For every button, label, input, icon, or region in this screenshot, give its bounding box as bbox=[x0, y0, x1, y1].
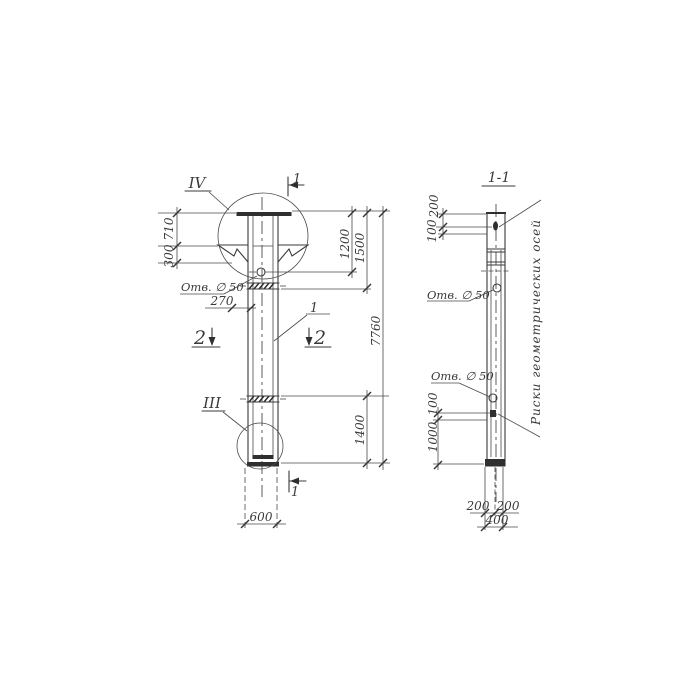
dim-400: 400 bbox=[485, 513, 509, 527]
dim-710: 710 bbox=[162, 217, 176, 240]
detail-circle-top bbox=[218, 193, 308, 279]
section-view-dimensions bbox=[427, 186, 541, 531]
callout-leader bbox=[274, 315, 307, 341]
section-cut-number-2-right: 2 bbox=[313, 327, 326, 349]
dim-1500: 1500 bbox=[353, 232, 367, 263]
front-view-column bbox=[218, 193, 308, 497]
lower-joint-band bbox=[240, 396, 286, 402]
technical-drawing-svg: IV 1 2 2 1 III 1 Отв. ∅ 50 270 710 300 1… bbox=[0, 0, 700, 700]
section-cut-number-bottom: 1 bbox=[291, 485, 299, 500]
dim-600: 600 bbox=[250, 510, 273, 524]
corbel-right bbox=[278, 245, 308, 262]
front-view-dimensions bbox=[158, 177, 390, 530]
section-tip bbox=[485, 459, 505, 467]
dim-200-bottom-right: 200 bbox=[496, 499, 520, 513]
upper-hole bbox=[257, 268, 265, 276]
corbel-left bbox=[218, 245, 248, 262]
dim-7760: 7760 bbox=[369, 315, 383, 346]
detail-iii-label: III bbox=[202, 394, 222, 412]
section-hole-upper bbox=[493, 284, 501, 292]
dim-1400: 1400 bbox=[353, 414, 367, 445]
tip-inner-plate bbox=[253, 455, 274, 459]
dim-200-top: 200 bbox=[427, 194, 441, 218]
cap-plate bbox=[237, 212, 292, 216]
dim-1000: 1000 bbox=[426, 421, 440, 452]
section-view-column bbox=[481, 204, 511, 502]
dim-1200: 1200 bbox=[338, 228, 352, 259]
upper-joint-band bbox=[240, 283, 286, 289]
front-hole-note: Отв. ∅ 50 bbox=[181, 280, 244, 294]
section-cut-number-top: 1 bbox=[293, 172, 301, 187]
section-title: 1-1 bbox=[488, 170, 511, 186]
drawing-sheet: IV 1 2 2 1 III 1 Отв. ∅ 50 270 710 300 1… bbox=[0, 0, 700, 700]
dim-100-top: 100 bbox=[425, 219, 439, 242]
section-cut-number-2-left: 2 bbox=[193, 327, 206, 349]
hole-note-lower-leader bbox=[459, 383, 490, 397]
axis-mark-lower bbox=[490, 410, 496, 417]
dim-300: 300 bbox=[162, 244, 176, 267]
detail-iv-label: IV bbox=[188, 174, 208, 192]
dim-100-bottom: 100 bbox=[426, 392, 440, 415]
detail-iv-leader bbox=[209, 192, 229, 210]
section-hole-note-upper: Отв. ∅ 50 bbox=[427, 288, 490, 302]
dim-200-bottom-left: 200 bbox=[466, 499, 490, 513]
section-hole-note-lower: Отв. ∅ 50 bbox=[431, 369, 494, 383]
dim-270: 270 bbox=[210, 294, 234, 308]
axes-note: Риски геометрических осей bbox=[529, 219, 543, 426]
detail-iii-leader bbox=[223, 412, 247, 431]
axis-mark-upper bbox=[493, 222, 498, 231]
part-callout-number: 1 bbox=[310, 301, 318, 316]
